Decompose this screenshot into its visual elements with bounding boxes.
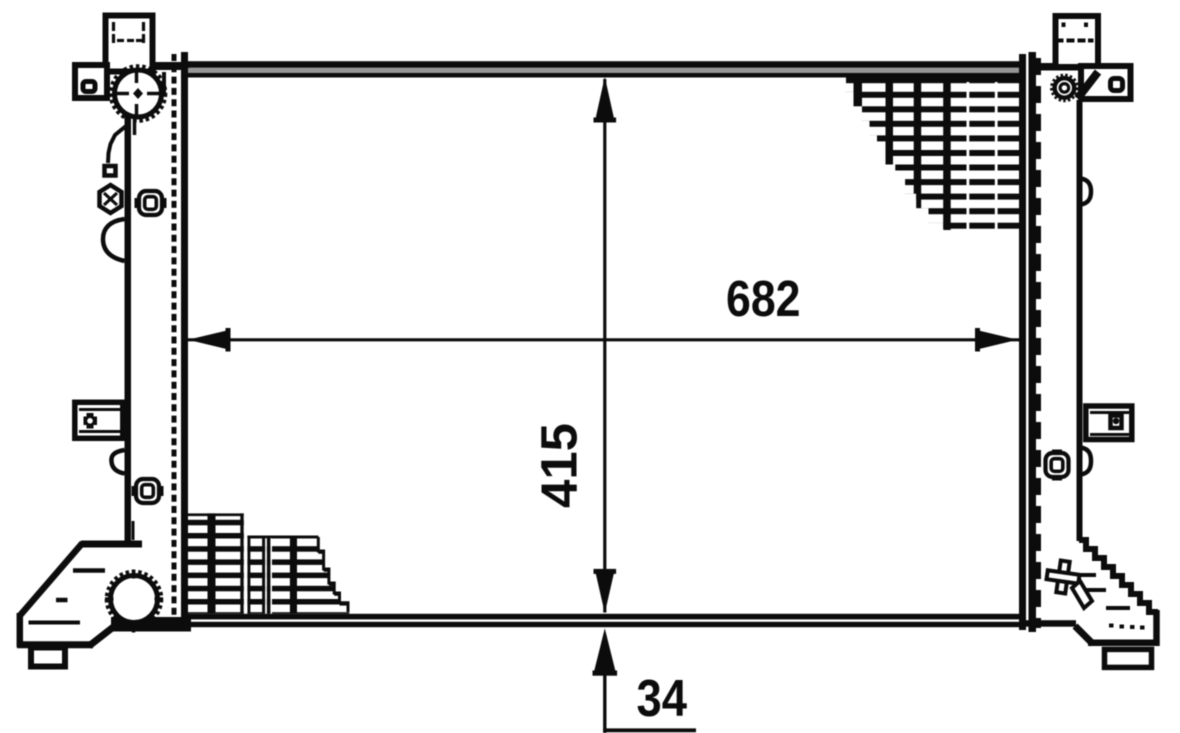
svg-text:682: 682 bbox=[726, 270, 801, 327]
svg-text:415: 415 bbox=[531, 423, 588, 508]
svg-text:34: 34 bbox=[637, 670, 688, 728]
